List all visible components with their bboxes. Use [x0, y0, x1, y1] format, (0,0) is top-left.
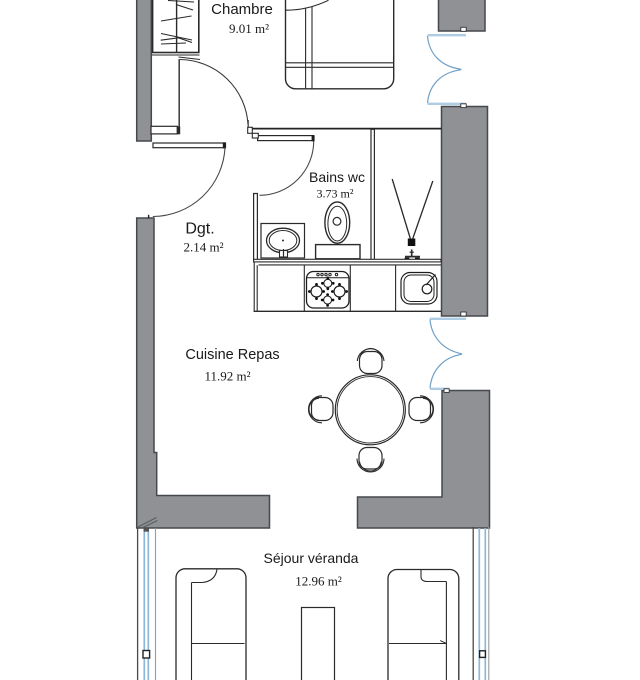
- svg-text:Dgt.: Dgt.: [185, 221, 214, 238]
- svg-text:Chambre: Chambre: [211, 1, 273, 18]
- svg-text:9.01 m²: 9.01 m²: [229, 21, 269, 36]
- svg-text:3.73 m²: 3.73 m²: [317, 187, 354, 201]
- svg-text:2.14 m²: 2.14 m²: [183, 240, 223, 255]
- svg-text:Bains wc: Bains wc: [309, 169, 365, 185]
- svg-text:Séjour véranda: Séjour véranda: [264, 550, 359, 566]
- svg-text:Cuisine Repas: Cuisine Repas: [185, 347, 279, 363]
- svg-text:12.96 m²: 12.96 m²: [295, 574, 342, 589]
- svg-text:11.92 m²: 11.92 m²: [204, 369, 250, 384]
